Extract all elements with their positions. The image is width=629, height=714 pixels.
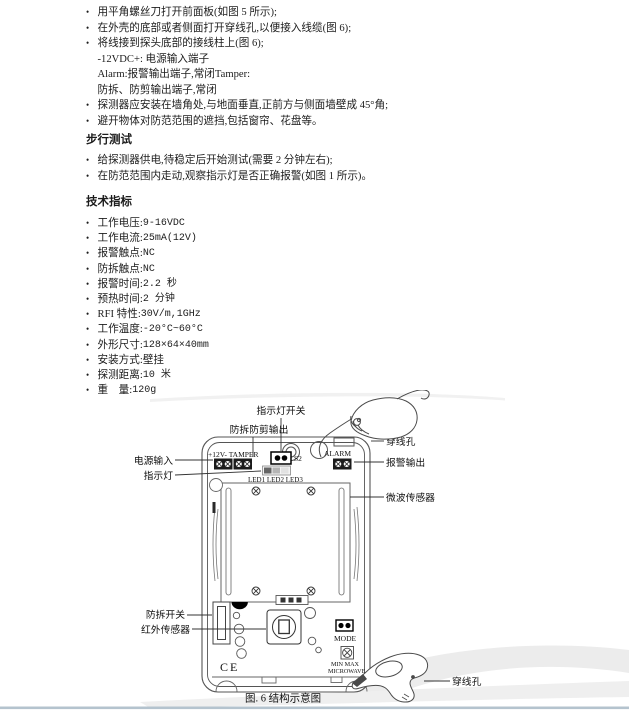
walk-test-list: •给探测器供电,待稳定后开始测试(需要 2 分钟左右); •在防范范围内走动,观… xyxy=(86,153,611,184)
spec-label: 防拆触点: xyxy=(98,262,143,277)
spec-value: 2.2 秒 xyxy=(143,277,177,292)
spec-label: RFI 特性: xyxy=(98,307,141,322)
bullet-item: •给探测器供电,待稳定后开始测试(需要 2 分钟左右); xyxy=(86,153,611,169)
label-alarm-output: 报警输出 xyxy=(386,456,425,469)
sub-line-text: Alarm:报警输出端子,常闭Tamper: xyxy=(98,67,251,83)
sub-line: 防拆、防剪输出端子,常闭 xyxy=(86,83,611,99)
pcb-slot xyxy=(226,488,231,595)
tamper-switch xyxy=(213,602,230,644)
small-circle xyxy=(316,647,322,653)
spec-label: 探测距离: xyxy=(98,368,143,383)
sub-line: -12VDC+: 电源输入端子 xyxy=(86,52,611,68)
spec-label: 安装方式: xyxy=(98,353,143,368)
installation-list: •用平角螺丝刀打开前面板(如图 5 所示); •在外壳的底部或者侧面打开穿线孔,… xyxy=(86,5,611,129)
spec-row: •工作温度:-20°C~60°C xyxy=(86,322,611,337)
bullet-item: •在防范范围内走动,观察指示灯是否正确报警(如图 1 所示)。 xyxy=(86,169,611,185)
alarm-text: ALARM xyxy=(324,449,351,458)
alarm-terminal-block xyxy=(333,459,352,470)
label-microwave-sensor: 微波传感器 xyxy=(386,491,435,504)
spec-value: 2 分钟 xyxy=(143,292,175,307)
bullet-dot: • xyxy=(86,292,98,307)
bullet-item: •避开物体对防范范围的遮挡,包括窗帘、花盘等。 xyxy=(86,114,611,130)
bullet-dot: • xyxy=(86,169,98,185)
bullet-dot: • xyxy=(86,5,98,21)
power-terminal-block xyxy=(214,459,233,470)
bullet-dot: • xyxy=(86,231,98,246)
bullet-dot: • xyxy=(86,98,98,114)
spec-row: •报警触点:NC xyxy=(86,246,611,261)
spec-value: 壁挂 xyxy=(143,353,164,368)
ce-mark: CE xyxy=(220,660,239,674)
mode-jumper xyxy=(336,620,353,631)
spec-label: 报警时间: xyxy=(98,277,143,292)
bullet-text: 用平角螺丝刀打开前面板(如图 5 所示); xyxy=(98,5,278,21)
spec-value: 9-16VDC xyxy=(143,216,185,231)
structure-diagram: +12V- TAMPER S2 ALARM LED1 LED2 LED3 xyxy=(0,390,629,714)
bullet-text: 在外壳的底部或者侧面打开穿线孔,以便接入线缆(图 6); xyxy=(98,21,352,37)
pin-connector xyxy=(276,596,308,605)
background-swoosh xyxy=(150,393,505,402)
bullet-dot: • xyxy=(86,153,98,169)
spec-row: •外形尺寸:128×64×40mm xyxy=(86,338,611,353)
spec-value: -20°C~60°C xyxy=(143,322,203,337)
page-edge-line xyxy=(0,707,629,710)
bullet-dot: • xyxy=(86,246,98,261)
spec-label: 外形尺寸: xyxy=(98,338,143,353)
label-power-input: 电源输入 xyxy=(134,454,173,467)
label-tamper-switch: 防拆开关 xyxy=(146,608,185,621)
microwave-name-text: MICROWAVE xyxy=(328,668,366,675)
bullet-dot: • xyxy=(86,36,98,52)
spec-row: •RFI 特性:30V/m,1GHz xyxy=(86,307,611,322)
spec-row: •工作电压:9-16VDC xyxy=(86,216,611,231)
spec-label: 工作温度: xyxy=(98,322,143,337)
bullet-dot: • xyxy=(86,277,98,292)
bullet-item: •用平角螺丝刀打开前面板(如图 5 所示); xyxy=(86,5,611,21)
spec-value: NC xyxy=(143,262,155,277)
bullet-dot: • xyxy=(86,216,98,231)
pir-sensor xyxy=(267,610,301,644)
bullet-text: 将线接到探头底部的接线柱上(图 6); xyxy=(98,36,264,52)
label-tamper-output: 防拆防剪输出 xyxy=(230,423,289,436)
spec-value: 25mA(12V) xyxy=(143,231,197,246)
bullet-text: 在防范范围内走动,观察指示灯是否正确报警(如图 1 所示)。 xyxy=(98,169,373,185)
spec-value: 128×64×40mm xyxy=(143,338,209,353)
sub-line-text: 防拆、防剪输出端子,常闭 xyxy=(98,83,217,99)
bullet-text: 探测器应安装在墙角处,与地面垂直,正前方与侧面墙壁成 45°角; xyxy=(98,98,389,114)
label-indicator-light: 指示灯 xyxy=(144,469,174,482)
bullet-dot: • xyxy=(86,368,98,383)
marker-bar xyxy=(213,502,216,513)
pcb-board xyxy=(221,483,350,602)
bullet-text: 给探测器供电,待稳定后开始测试(需要 2 分钟左右); xyxy=(98,153,333,169)
bullet-item: •探测器应安装在墙角处,与地面垂直,正前方与侧面墙壁成 45°角; xyxy=(86,98,611,114)
bullet-dot: • xyxy=(86,114,98,130)
led-slider xyxy=(263,466,291,475)
bullet-dot: • xyxy=(86,353,98,368)
label-wire-hole-bottom: 穿线孔 xyxy=(452,675,482,688)
figure-caption: 图. 6 结构示意图 xyxy=(245,692,321,705)
sub-line-text: -12VDC+: 电源输入端子 xyxy=(98,52,210,68)
pcb-slot xyxy=(339,488,344,595)
sub-line: Alarm:报警输出端子,常闭Tamper: xyxy=(86,67,611,83)
walk-test-heading: 步行测试 xyxy=(86,133,611,148)
specs-list: •工作电压:9-16VDC •工作电流:25mA(12V) •报警触点:NC •… xyxy=(86,216,611,398)
spec-label: 工作电压: xyxy=(98,216,143,231)
label-led-switch: 指示灯开关 xyxy=(257,404,306,417)
buzzer-circle xyxy=(210,479,223,492)
bullet-item: •将线接到探头底部的接线柱上(图 6); xyxy=(86,36,611,52)
mode-text: MODE xyxy=(334,634,357,643)
bullet-item: •在外壳的底部或者侧面打开穿线孔,以便接入线缆(图 6); xyxy=(86,21,611,37)
spec-value: 30V/m,1GHz xyxy=(141,307,201,322)
spec-value: 10 米 xyxy=(143,368,171,383)
power-terminal-text: +12V- TAMPER xyxy=(208,450,259,459)
spec-row: •探测距离:10 米 xyxy=(86,368,611,383)
s2-jumper xyxy=(271,452,291,464)
spec-row: •工作电流:25mA(12V) xyxy=(86,231,611,246)
spec-row: •预热时间:2 分钟 xyxy=(86,292,611,307)
spec-row: •防拆触点:NC xyxy=(86,262,611,277)
spec-label: 工作电流: xyxy=(98,231,143,246)
spec-label: 报警触点: xyxy=(98,246,143,261)
bullet-dot: • xyxy=(86,322,98,337)
small-circle xyxy=(305,608,316,619)
small-circle xyxy=(308,637,316,645)
specs-heading: 技术指标 xyxy=(86,195,611,210)
bullet-dot: • xyxy=(86,338,98,353)
tamper-terminal-block xyxy=(234,459,253,470)
label-ir-sensor: 红外传感器 xyxy=(141,623,190,636)
spec-value: NC xyxy=(143,246,155,261)
bullet-text: 避开物体对防范范围的遮挡,包括窗帘、花盘等。 xyxy=(98,114,323,130)
bullet-dot: • xyxy=(86,21,98,37)
spec-row: •报警时间:2.2 秒 xyxy=(86,277,611,292)
s2-text: S2 xyxy=(294,454,302,463)
bullet-dot: • xyxy=(86,307,98,322)
spec-label: 预热时间: xyxy=(98,292,143,307)
bullet-dot: • xyxy=(86,262,98,277)
microwave-range-text: MIN MAX xyxy=(331,661,360,668)
spec-row: •安装方式:壁挂 xyxy=(86,353,611,368)
